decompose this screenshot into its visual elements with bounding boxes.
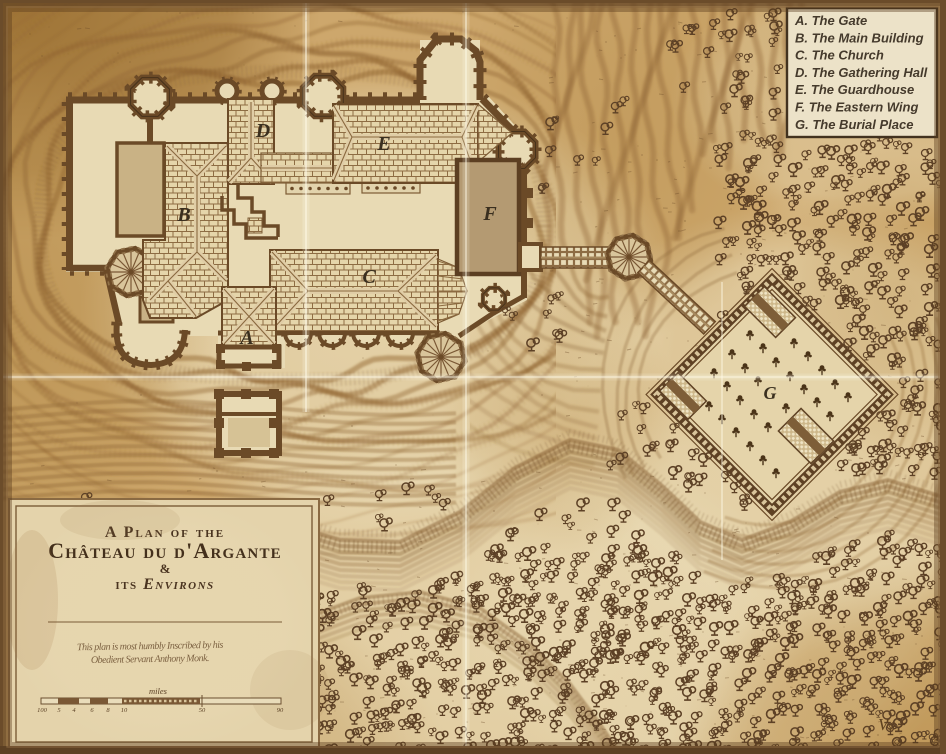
svg-text:A. The Gate: A. The Gate [794,13,867,28]
svg-text:Château du d'Argante: Château du d'Argante [48,538,282,563]
svg-text:10: 10 [121,707,128,714]
svg-text:G. The Burial Place: G. The Burial Place [795,117,914,132]
svg-text:&: & [160,561,171,576]
svg-text:D. The Gathering Hall: D. The Gathering Hall [795,65,928,80]
svg-text:A: A [238,327,253,349]
svg-text:Obedient Servant Anthony Monk.: Obedient Servant Anthony Monk. [91,653,209,666]
svg-text:G: G [764,383,777,403]
svg-text:E: E [376,133,390,155]
svg-text:C: C [362,266,376,288]
svg-text:90: 90 [277,707,284,714]
svg-text:E. The Guardhouse: E. The Guardhouse [795,82,914,97]
svg-text:B: B [176,204,190,226]
svg-text:F. The Eastern Wing: F. The Eastern Wing [795,100,918,115]
svg-text:F: F [482,203,497,225]
svg-text:D: D [255,120,270,142]
svg-text:C. The Church: C. The Church [795,48,884,63]
svg-text:50: 50 [199,707,206,714]
svg-text:its Environs: its Environs [115,576,214,593]
svg-text:miles: miles [149,686,168,696]
svg-text:B. The Main Building: B. The Main Building [795,30,924,45]
svg-text:100: 100 [37,707,48,714]
